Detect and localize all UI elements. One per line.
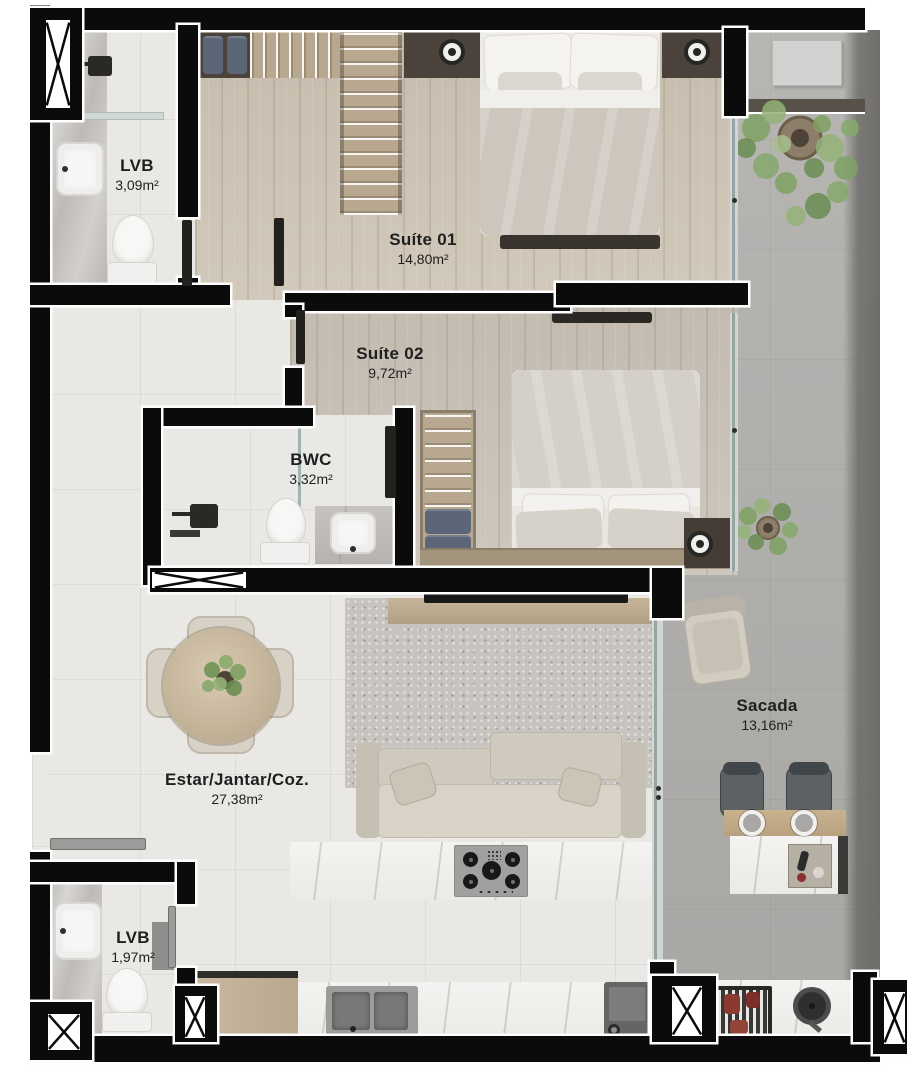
room-label-suite02: Suíte 02 9,72m²	[356, 344, 424, 381]
wall-suite02-north-b	[556, 283, 748, 305]
wall-bwc-top	[143, 408, 313, 426]
suite02-lamp	[687, 531, 713, 557]
folded-clothes	[203, 36, 223, 74]
suite01-lamp-left	[439, 39, 465, 65]
wall-lvbtop-right	[178, 25, 198, 217]
room-area: 27,38m²	[165, 791, 309, 807]
sofa-back-right	[490, 732, 622, 780]
sliding-glass-door-suite01	[730, 114, 738, 308]
entry-threshold	[32, 752, 50, 852]
bwc-shower-head	[190, 504, 218, 528]
suite01-bed	[480, 28, 660, 236]
bwc-shower-arm	[172, 512, 190, 516]
suite01-closet-shelf	[198, 28, 250, 78]
suite01-lamp-right	[684, 39, 710, 65]
bar-plate	[739, 810, 765, 836]
shaft-window-bwc	[150, 570, 248, 590]
wall-bwc-right	[395, 408, 413, 585]
door-lvb-top	[182, 220, 192, 286]
cooktop	[454, 845, 528, 897]
room-area: 1,97m²	[111, 949, 155, 965]
lvb-top-faucet	[62, 166, 68, 172]
folded-clothes	[425, 509, 471, 534]
room-label-lvb-top: LVB 3,09m²	[115, 156, 159, 193]
bwc-toilet-tank	[260, 542, 310, 564]
lvb-top-shower-head	[88, 56, 112, 76]
suite01-wardrobe	[340, 30, 402, 215]
door-suite01	[274, 218, 284, 286]
lvb-bottom-toilet-tank	[102, 1012, 152, 1032]
bwc-toilet-bowl	[266, 498, 306, 548]
floor-plan: LVB 3,09m² Suíte 01 14,80m² Suíte 02 9,7…	[0, 0, 907, 1080]
suite02-wall-shelf	[552, 312, 652, 323]
table-plant	[196, 650, 254, 706]
ac-unit	[772, 40, 842, 86]
shaft-window-right-edge	[882, 990, 907, 1046]
sliding-glass-door-suite02	[730, 313, 738, 571]
wall-bottom	[30, 1036, 880, 1062]
room-area: 3,32m²	[289, 471, 333, 487]
room-label-lvb-bottom: LVB 1,97m²	[111, 928, 155, 965]
bed-blanket	[512, 370, 700, 496]
bed-pillow	[607, 508, 695, 552]
bar-plate	[791, 810, 817, 836]
sofa-arm-right	[620, 742, 646, 838]
room-name: BWC	[289, 450, 333, 470]
wall-below-lvbtop	[30, 285, 230, 305]
wall-bwc-left	[143, 408, 161, 585]
balcony-plant-small	[734, 498, 802, 564]
room-area: 13,16m²	[736, 717, 797, 733]
room-name: Sacada	[736, 696, 797, 716]
wall-lvbbottom-top	[30, 862, 195, 882]
room-name: LVB	[111, 928, 155, 948]
hanger-section	[425, 415, 471, 507]
lvb-top-toilet-tank	[107, 262, 157, 284]
room-label-bwc: BWC 3,32m²	[289, 450, 333, 487]
lvb-bottom-faucet	[60, 928, 66, 934]
bar-cabinet-side	[838, 836, 848, 894]
bwc-faucet	[350, 546, 356, 552]
door-lvb-bottom	[168, 906, 176, 968]
wall-suite01-balcony	[724, 28, 746, 116]
cooktop-grate	[487, 850, 501, 860]
room-name: Estar/Jantar/Coz.	[165, 770, 309, 790]
door-handle	[732, 428, 737, 433]
suite02-bed	[512, 370, 700, 550]
kitchen-sink	[326, 986, 418, 1036]
door-handle	[732, 198, 737, 203]
bed-blanket	[480, 108, 660, 236]
wall-lvbbottom-right-a	[177, 862, 195, 904]
door-handle	[656, 786, 661, 791]
drinks-tray	[788, 844, 832, 888]
door-bwc	[385, 426, 396, 498]
suite01-hanger-rail	[250, 28, 354, 78]
lvb-top-toilet-bowl	[112, 215, 154, 267]
wall-top	[30, 8, 865, 30]
tv	[424, 592, 628, 603]
kitchen-appliance	[604, 982, 650, 1038]
room-name: Suíte 01	[389, 230, 457, 250]
balcony-plant-large	[726, 88, 868, 238]
bbq-grill	[714, 986, 772, 1040]
folded-clothes	[227, 36, 247, 74]
room-label-estar: Estar/Jantar/Coz. 27,38m²	[165, 770, 309, 807]
shaft-window-bottomleft	[46, 1012, 82, 1052]
suite02-wardrobe	[420, 410, 476, 562]
room-label-suite01: Suíte 01 14,80m²	[389, 230, 457, 267]
door-handle	[656, 795, 661, 800]
cooktop-knobs	[477, 890, 513, 894]
sofa	[356, 726, 646, 842]
room-name: LVB	[115, 156, 159, 176]
door-entry	[50, 838, 146, 850]
balcony-armchair	[678, 594, 755, 688]
suite01-foot-bench	[500, 235, 660, 249]
lvb-bottom-toilet-bowl	[106, 968, 148, 1018]
room-area: 14,80m²	[389, 251, 457, 267]
room-area: 9,72m²	[356, 365, 424, 381]
room-area: 3,09m²	[115, 177, 159, 193]
lvb-top-glass-shelf	[72, 112, 164, 120]
wall-suite02-north-a	[285, 293, 570, 311]
bbq-round-sink	[793, 987, 831, 1025]
wall-balcony-corner	[652, 568, 682, 618]
shaft-window-sacada	[670, 984, 704, 1038]
shaft-window-lvb2	[183, 994, 207, 1040]
shaft-window-topleft	[44, 18, 72, 110]
kitchen-faucet	[350, 1026, 356, 1032]
bwc-shower-base	[170, 530, 200, 537]
room-name: Suíte 02	[356, 344, 424, 364]
door-suite02	[296, 310, 305, 364]
bed-pillow	[515, 508, 603, 552]
room-label-sacada: Sacada 13,16m²	[736, 696, 797, 733]
